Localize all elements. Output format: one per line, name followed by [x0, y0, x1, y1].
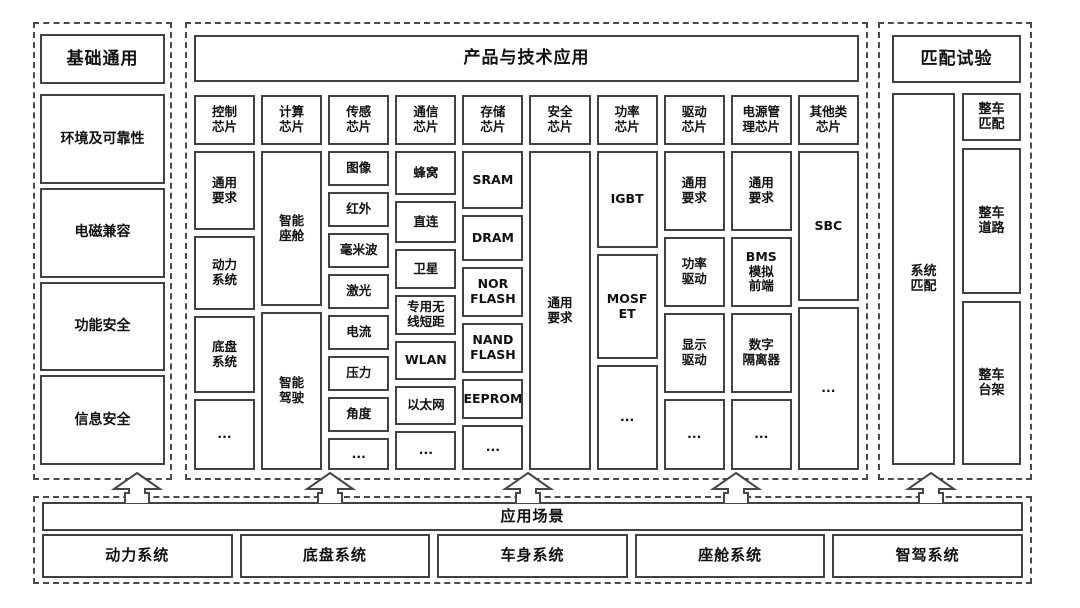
chip-item: 角度	[328, 397, 389, 432]
chip-item: EEPROM	[462, 379, 523, 419]
chip-item: BMS 模拟 前端	[731, 237, 792, 307]
matching-test-body: 系统 匹配 整车 匹配整车 道路整车 台架	[892, 93, 1021, 465]
chip-item-ellipsis: ...	[462, 425, 523, 470]
chip-column: 控制 芯片通用 要求动力 系统底盘 系统...	[194, 95, 255, 470]
chip-item-ellipsis: ...	[328, 438, 389, 470]
vehicle-test-item: 整车 台架	[962, 301, 1021, 465]
chip-column: 计算 芯片智能 座舱智能 驾驶	[261, 95, 322, 470]
chip-item-ellipsis: ...	[194, 399, 255, 470]
chip-item-ellipsis: ...	[798, 307, 859, 470]
chip-column-header: 存储 芯片	[462, 95, 523, 145]
chip-item: 动力 系统	[194, 236, 255, 310]
chip-item-ellipsis: ...	[731, 399, 792, 470]
chip-item: 电流	[328, 315, 389, 350]
chip-item: 红外	[328, 192, 389, 227]
chip-column: 电源管 理芯片通用 要求BMS 模拟 前端数字 隔离器...	[731, 95, 792, 470]
products-technology-title: 产品与技术应用	[194, 35, 859, 82]
chip-column: 其他类 芯片SBC...	[798, 95, 859, 470]
system-match-box: 系统 匹配	[892, 93, 955, 465]
chip-item-ellipsis: ...	[664, 399, 725, 470]
chip-item: 通用 要求	[194, 151, 255, 230]
chip-item-ellipsis: ...	[395, 431, 456, 470]
chip-column: 存储 芯片SRAMDRAMNOR FLASHNAND FLASHEEPROM..…	[462, 95, 523, 470]
application-scenario-title: 应用场景	[42, 502, 1023, 531]
chip-column: 通信 芯片蜂窝直连卫星专用无 线短距WLAN以太网...	[395, 95, 456, 470]
scenario-system-box: 底盘系统	[240, 534, 431, 578]
chip-column-header: 功率 芯片	[597, 95, 658, 145]
block-up-arrow-icon	[111, 472, 163, 504]
chip-column-header: 电源管 理芯片	[731, 95, 792, 145]
matching-test-title: 匹配试验	[892, 35, 1021, 83]
chip-column-header: 其他类 芯片	[798, 95, 859, 145]
chip-item: NAND FLASH	[462, 323, 523, 373]
chip-item: 通用 要求	[731, 151, 792, 231]
chip-item: 图像	[328, 151, 389, 186]
chip-item: 专用无 线短距	[395, 295, 456, 335]
chip-item: 激光	[328, 274, 389, 309]
chip-column-header: 安全 芯片	[529, 95, 590, 145]
block-up-arrow-icon	[710, 472, 762, 504]
chip-item: 以太网	[395, 386, 456, 425]
chip-item: 底盘 系统	[194, 316, 255, 393]
chip-item: 智能 座舱	[261, 151, 322, 306]
scenario-system-box: 座舱系统	[635, 534, 826, 578]
vehicle-test-item: 整车 匹配	[962, 93, 1021, 141]
chip-item: DRAM	[462, 215, 523, 261]
chip-item: 蜂窝	[395, 151, 456, 195]
scenario-systems-row: 动力系统底盘系统车身系统座舱系统智驾系统	[42, 534, 1023, 578]
vehicle-test-item: 整车 道路	[962, 148, 1021, 294]
chip-item: 卫星	[395, 249, 456, 289]
chip-column: 驱动 芯片通用 要求功率 驱动显示 驱动...	[664, 95, 725, 470]
basic-general-item: 环境及可靠性	[40, 94, 165, 184]
basic-general-item: 信息安全	[40, 375, 165, 465]
chip-item: 功率 驱动	[664, 237, 725, 307]
vehicle-test-items: 整车 匹配整车 道路整车 台架	[962, 93, 1021, 465]
chip-column-header: 传感 芯片	[328, 95, 389, 145]
chip-item: SBC	[798, 151, 859, 301]
block-up-arrow-icon	[905, 472, 957, 504]
chip-column: 安全 芯片通用 要求	[529, 95, 590, 470]
chip-column-header: 驱动 芯片	[664, 95, 725, 145]
chip-column: 传感 芯片图像红外毫米波激光电流压力角度...	[328, 95, 389, 470]
chip-column-header: 通信 芯片	[395, 95, 456, 145]
chip-item-ellipsis: ...	[597, 365, 658, 470]
products-technology-panel: 产品与技术应用 控制 芯片通用 要求动力 系统底盘 系统...计算 芯片智能 座…	[185, 22, 868, 480]
basic-general-item: 电磁兼容	[40, 188, 165, 278]
chip-column: 功率 芯片IGBTMOSF ET...	[597, 95, 658, 470]
block-up-arrow-icon	[304, 472, 356, 504]
chip-item: IGBT	[597, 151, 658, 248]
chip-item: WLAN	[395, 341, 456, 380]
chip-standards-diagram: 基础通用 环境及可靠性电磁兼容功能安全信息安全 产品与技术应用 控制 芯片通用 …	[0, 0, 1080, 608]
chip-column-header: 控制 芯片	[194, 95, 255, 145]
chip-item: 显示 驱动	[664, 313, 725, 393]
scenario-system-box: 动力系统	[42, 534, 233, 578]
chip-item: 数字 隔离器	[731, 313, 792, 393]
chip-item: 直连	[395, 201, 456, 243]
chip-item: 智能 驾驶	[261, 312, 322, 470]
chip-item: 压力	[328, 356, 389, 391]
block-up-arrow-icon	[502, 472, 554, 504]
chip-item: NOR FLASH	[462, 267, 523, 317]
chip-item: 通用 要求	[664, 151, 725, 231]
basic-general-item: 功能安全	[40, 282, 165, 372]
application-scenario-panel: 应用场景 动力系统底盘系统车身系统座舱系统智驾系统	[33, 496, 1032, 584]
chip-column-header: 计算 芯片	[261, 95, 322, 145]
matching-test-panel: 匹配试验 系统 匹配 整车 匹配整车 道路整车 台架	[878, 22, 1032, 480]
chip-item: 通用 要求	[529, 151, 590, 470]
basic-general-panel: 基础通用 环境及可靠性电磁兼容功能安全信息安全	[33, 22, 172, 480]
basic-general-items: 环境及可靠性电磁兼容功能安全信息安全	[40, 94, 165, 465]
chip-columns: 控制 芯片通用 要求动力 系统底盘 系统...计算 芯片智能 座舱智能 驾驶传感…	[194, 95, 859, 470]
chip-item: MOSF ET	[597, 254, 658, 359]
chip-item: SRAM	[462, 151, 523, 209]
chip-item: 毫米波	[328, 233, 389, 268]
scenario-system-box: 智驾系统	[832, 534, 1023, 578]
scenario-system-box: 车身系统	[437, 534, 628, 578]
basic-general-title: 基础通用	[40, 34, 165, 84]
